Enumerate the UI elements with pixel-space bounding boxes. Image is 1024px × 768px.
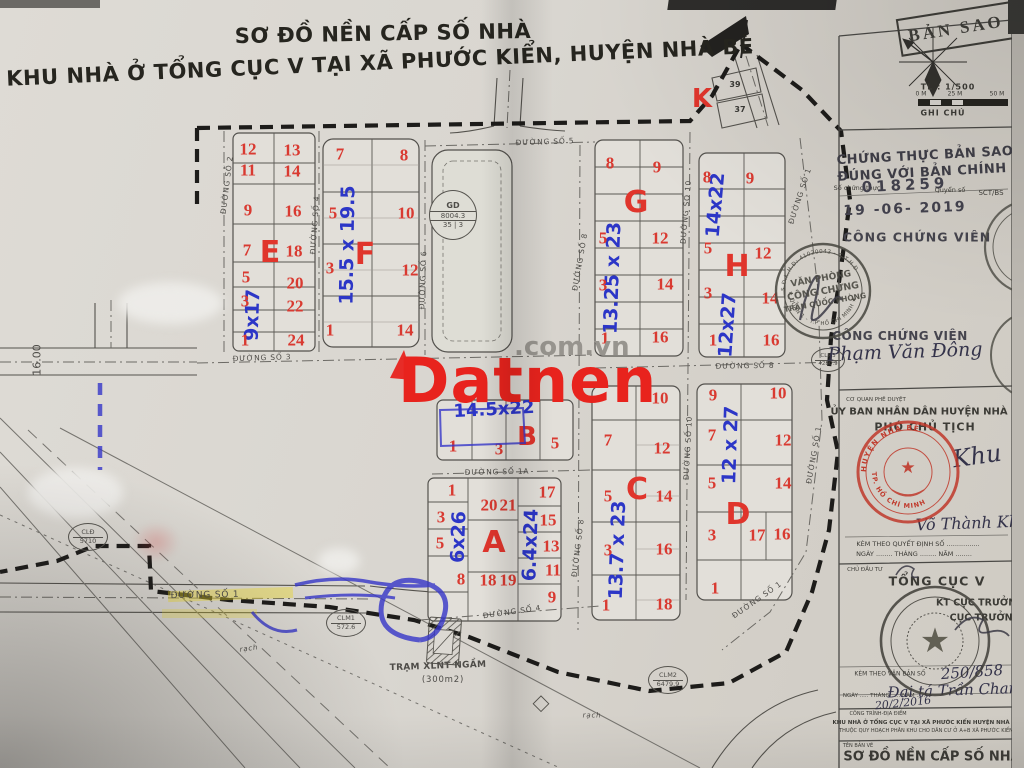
district-stamp-ring-bottom: TP. HỒ CHÍ MINH <box>870 472 927 511</box>
photo-edge-artifact <box>667 0 836 10</box>
paper-edge <box>1012 0 1024 768</box>
ring-text: TP. HỒ CHÍ MINH <box>870 472 927 511</box>
star-icon: ★ <box>920 621 950 661</box>
photo-edge-artifact <box>0 0 100 8</box>
star-icon: ★ <box>900 458 915 478</box>
watermark-suffix: .com.vn <box>514 334 630 360</box>
scanned-cadastral-map-sheet: SƠ ĐỒ NỀN CẤP SỐ NHÀ KHU NHÀ Ở TỔNG CỤC … <box>0 0 1024 768</box>
photo-edge-artifact <box>1008 0 1024 34</box>
